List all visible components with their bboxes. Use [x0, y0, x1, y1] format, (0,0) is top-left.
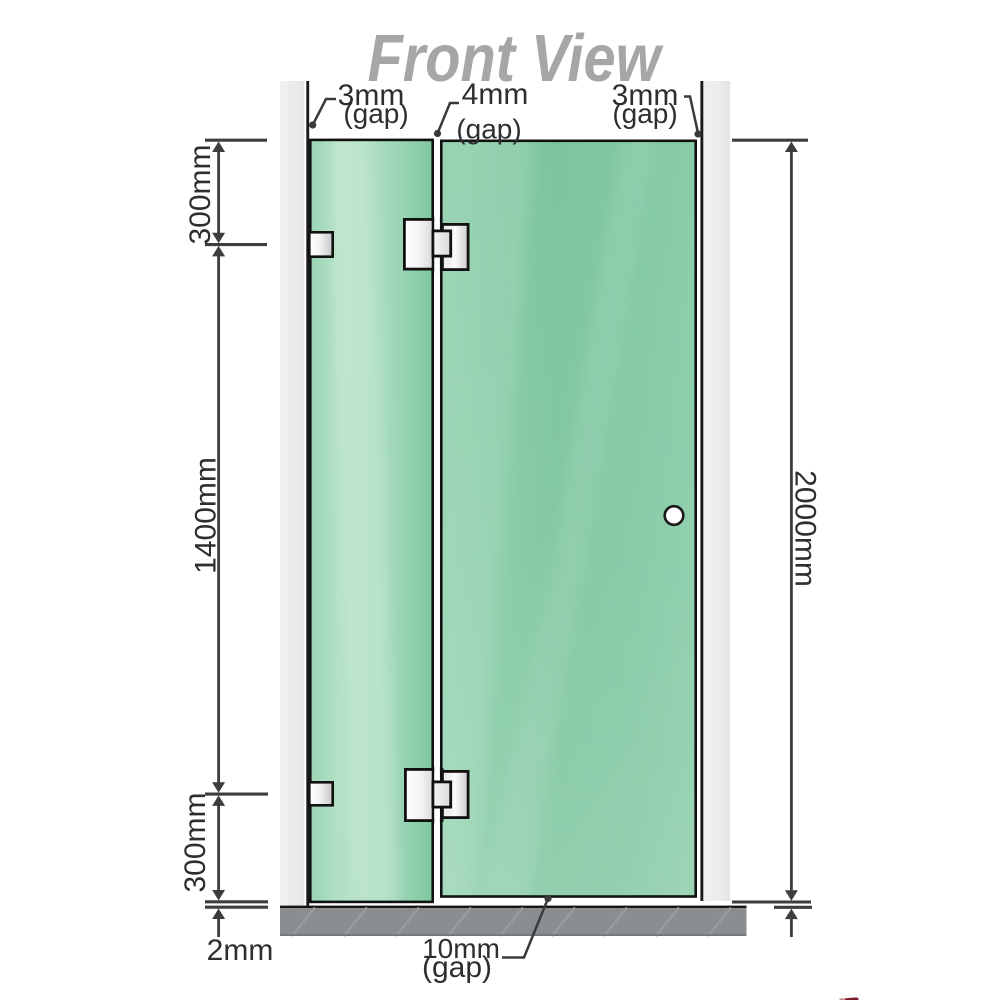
svg-text:300mm: 300mm	[179, 792, 212, 892]
svg-text:300mm: 300mm	[184, 144, 217, 244]
svg-text:(gap): (gap)	[612, 98, 677, 129]
svg-text:1400mm: 1400mm	[190, 457, 223, 574]
svg-text:(gap): (gap)	[422, 951, 492, 984]
svg-text:4mm: 4mm	[462, 78, 529, 111]
svg-text:2000mm: 2000mm	[789, 470, 822, 587]
svg-text:(gap): (gap)	[343, 98, 408, 129]
svg-text:(gap): (gap)	[456, 114, 521, 145]
svg-text:2mm: 2mm	[207, 934, 274, 967]
